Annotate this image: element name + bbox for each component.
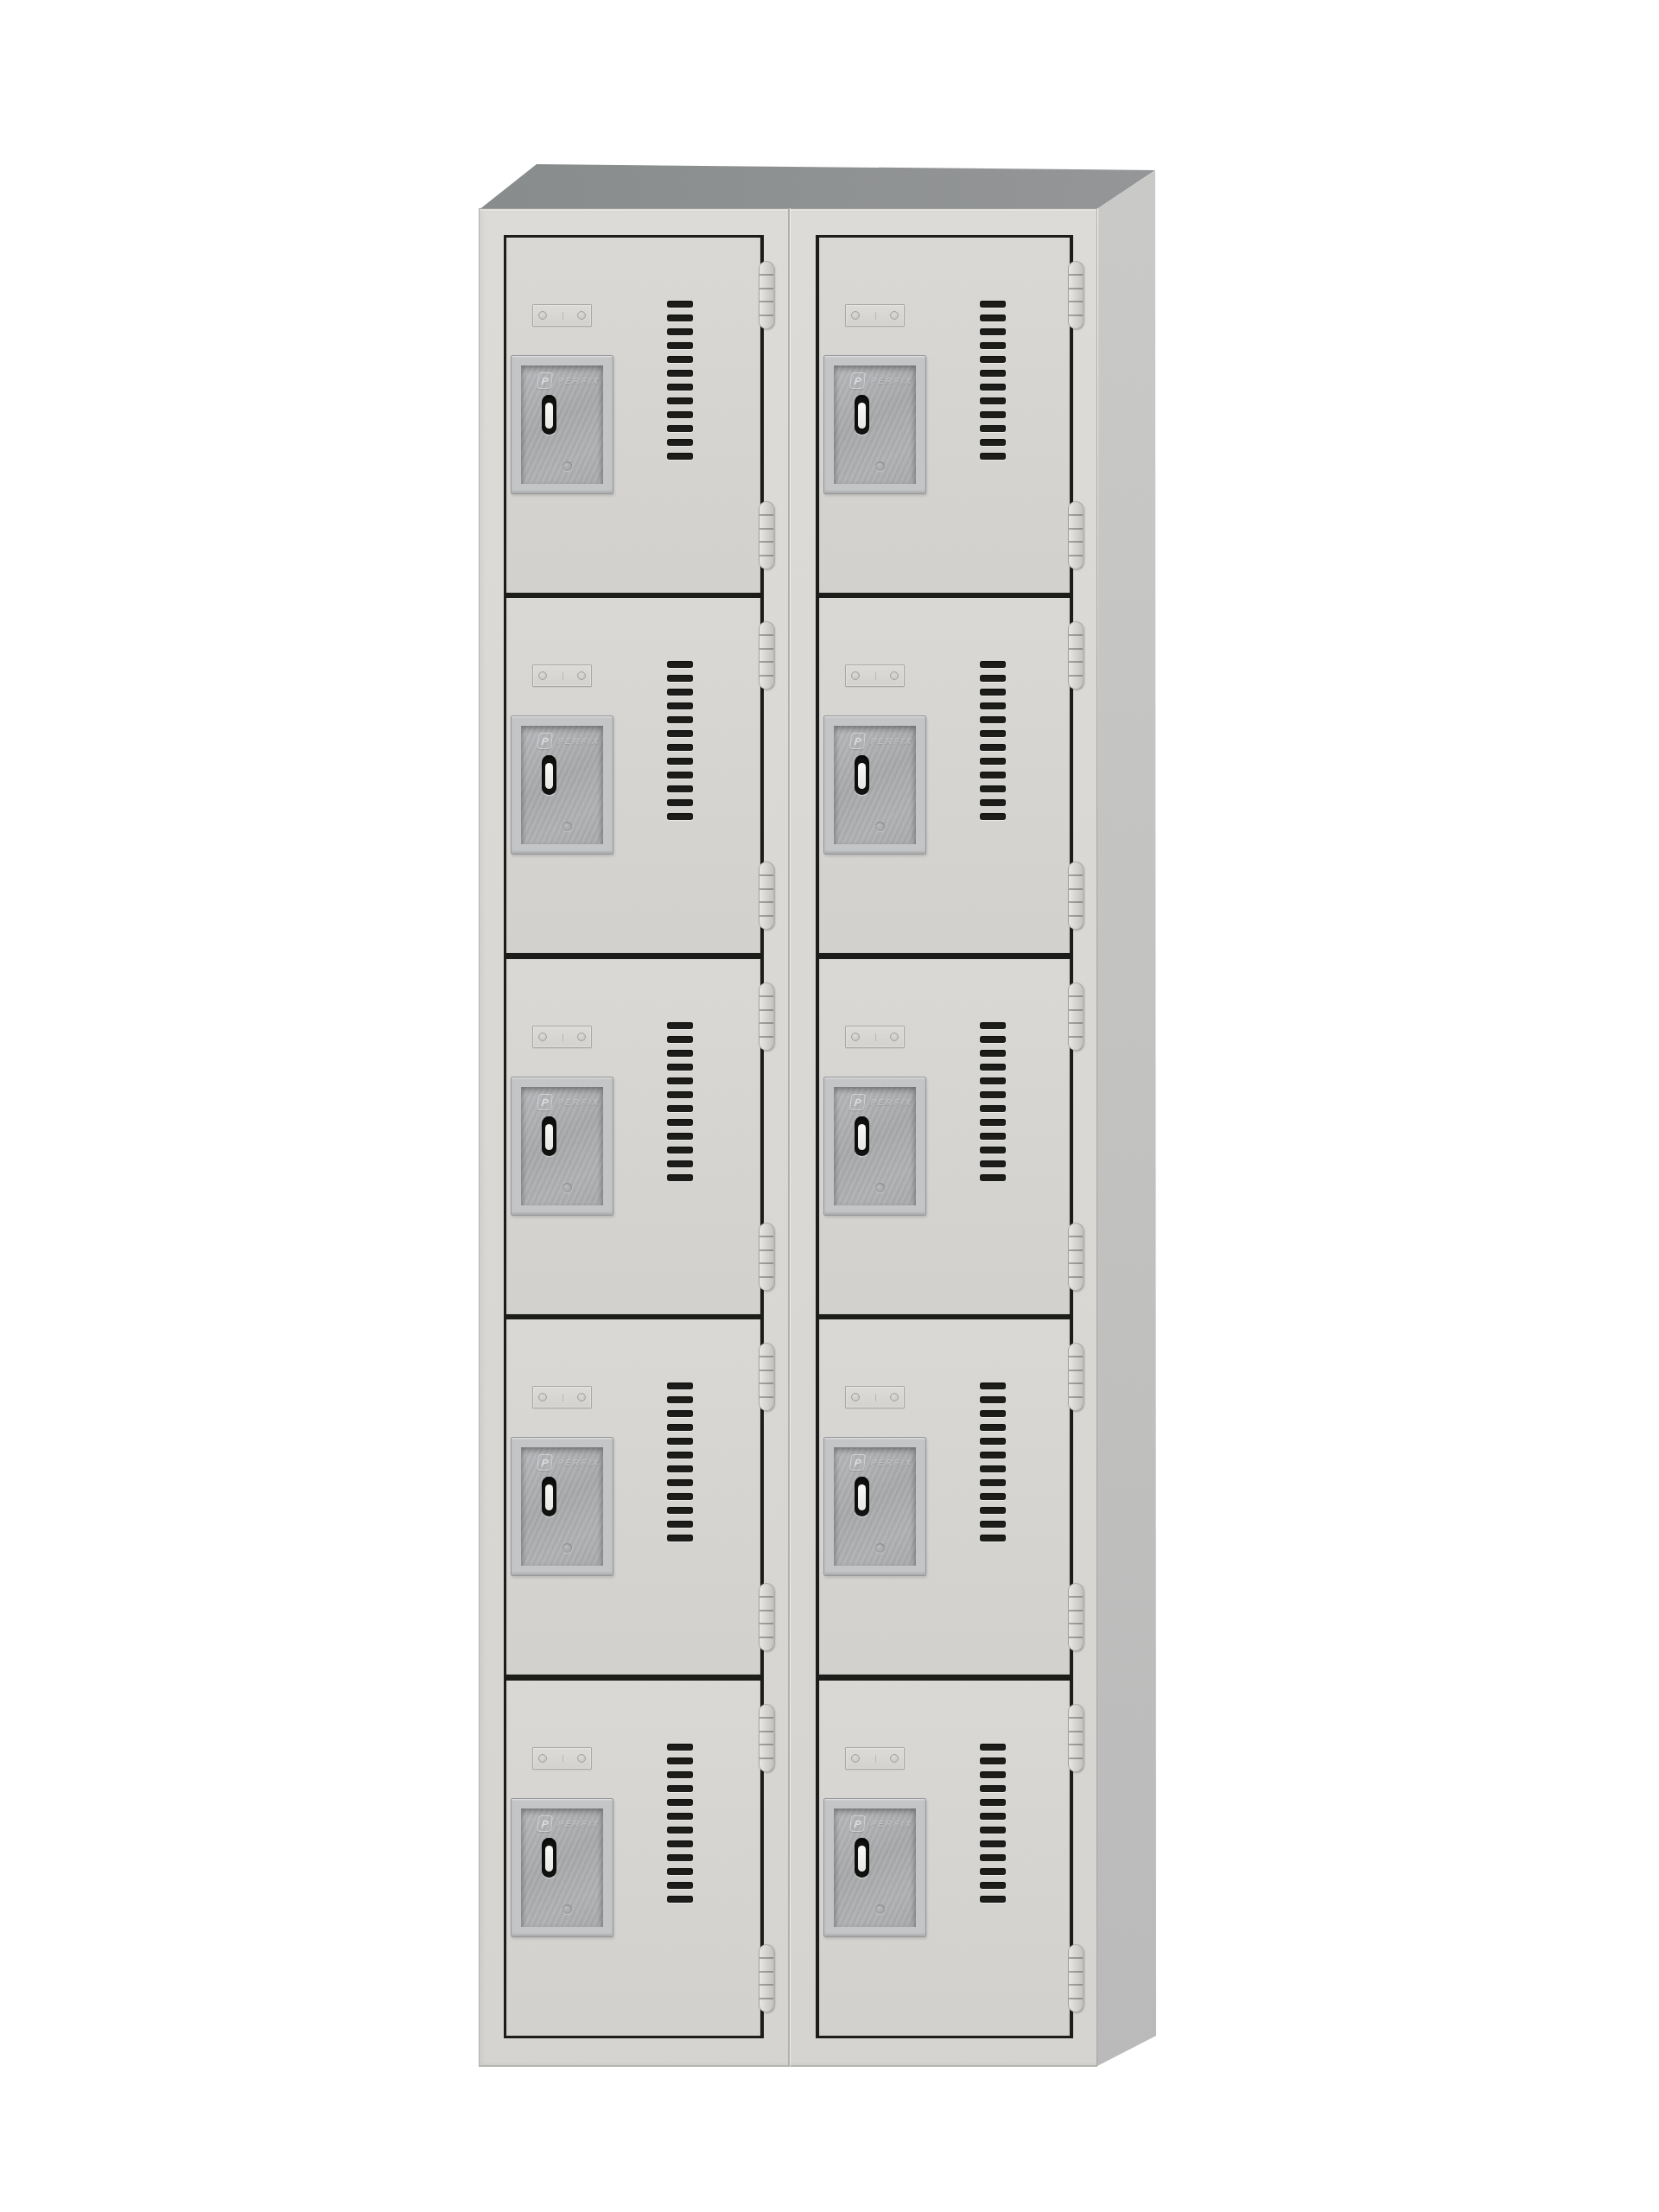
- vent-slot: [667, 1410, 693, 1417]
- vent-grid: [667, 301, 693, 467]
- name-plate: [532, 1026, 592, 1048]
- vent-slot: [667, 384, 693, 391]
- vent-slot: [667, 772, 693, 779]
- vent-slot: [980, 1785, 1006, 1792]
- vent-slot: [980, 356, 1006, 363]
- vent-slot: [980, 1105, 1006, 1112]
- vent-slot: [667, 1050, 693, 1057]
- locker-door: PPERFIX: [819, 959, 1070, 1314]
- vent-slot: [667, 716, 693, 723]
- handle-slot: [855, 1838, 869, 1878]
- handle-slot: [542, 1477, 556, 1516]
- hinge-top-icon: [759, 621, 774, 690]
- handle-insert: [545, 1124, 553, 1150]
- hinge-bottom-icon: [1068, 1944, 1084, 2012]
- name-plate-divider: [563, 312, 563, 320]
- vent-slot: [980, 370, 1006, 377]
- hinge-top-icon: [1068, 982, 1084, 1051]
- vent-slot: [667, 1785, 693, 1792]
- brand-monogram: P: [854, 736, 861, 747]
- vent-slot: [667, 301, 693, 308]
- vent-slot: [980, 1896, 1006, 1903]
- rivet-icon: [563, 822, 572, 831]
- brand-logo-icon: P: [537, 1454, 553, 1471]
- vent-slot: [980, 1521, 1006, 1528]
- vent-slot: [667, 744, 693, 751]
- vent-slot: [980, 1022, 1006, 1029]
- vent-slot: [667, 439, 693, 446]
- vent-slot: [980, 425, 1006, 432]
- rivet-icon: [875, 461, 885, 471]
- brand-logo-row: PPERFIX: [537, 1454, 601, 1471]
- name-plate-divider: [875, 1394, 876, 1402]
- vent-slot: [980, 1160, 1006, 1167]
- vent-slot: [980, 342, 1006, 349]
- rivet-icon: [563, 1543, 572, 1553]
- brand-logo-icon: P: [537, 733, 553, 749]
- cabinet-top-face: [479, 164, 1155, 210]
- name-plate-screw-icon: [890, 1033, 899, 1041]
- vent-slot: [667, 785, 693, 792]
- handle-slot: [855, 395, 869, 435]
- latch-plate: PPERFIX: [823, 355, 926, 494]
- locker-product-image: PPERFIXPPERFIXPPERFIXPPERFIXPPERFIX PPER…: [0, 0, 1659, 2212]
- vent-slot: [667, 1174, 693, 1181]
- brand-monogram: P: [854, 376, 861, 386]
- vent-slot: [980, 661, 1006, 668]
- brand-monogram: P: [541, 1819, 549, 1829]
- vent-slot: [667, 425, 693, 432]
- name-plate: [845, 304, 905, 327]
- vent-slot: [667, 702, 693, 709]
- vent-slot: [667, 411, 693, 418]
- vent-slot: [980, 689, 1006, 696]
- vent-slot: [667, 1827, 693, 1834]
- name-plate-screw-icon: [851, 1393, 860, 1402]
- handle-slot: [542, 1116, 556, 1156]
- hinge-bottom-icon: [759, 1583, 774, 1651]
- vent-slot: [667, 758, 693, 765]
- vent-slot: [980, 1119, 1006, 1126]
- name-plate-screw-icon: [538, 1754, 547, 1763]
- vent-slot: [667, 1133, 693, 1140]
- vent-slot: [667, 1896, 693, 1903]
- latch-plate: PPERFIX: [511, 355, 613, 494]
- vent-slot: [667, 1424, 693, 1431]
- name-plate-screw-icon: [538, 311, 547, 320]
- brand-logo-icon: P: [849, 372, 866, 389]
- vent-slot: [980, 328, 1006, 335]
- vent-slot: [980, 772, 1006, 779]
- locker-door: PPERFIX: [506, 238, 760, 593]
- hinge-top-icon: [759, 261, 774, 329]
- vent-slot: [980, 397, 1006, 404]
- brand-text: PERFIX: [869, 1819, 912, 1828]
- cabinet-right-side-face: [1096, 170, 1156, 2067]
- vent-slot: [667, 675, 693, 682]
- name-plate: [532, 304, 592, 327]
- name-plate-screw-icon: [890, 311, 899, 320]
- brand-logo-row: PPERFIX: [537, 733, 601, 749]
- hinge-bottom-icon: [759, 1944, 774, 2012]
- brand-logo-icon: P: [537, 1815, 553, 1832]
- vent-grid: [980, 661, 1006, 827]
- vent-slot: [980, 675, 1006, 682]
- name-plate-screw-icon: [538, 1393, 547, 1402]
- brand-logo-row: PPERFIX: [849, 1094, 913, 1110]
- brand-logo-row: PPERFIX: [849, 733, 913, 749]
- vent-slot: [980, 453, 1006, 460]
- name-plate-screw-icon: [851, 671, 860, 680]
- vent-slot: [980, 1133, 1006, 1140]
- brand-monogram: P: [541, 1458, 549, 1468]
- vent-slot: [980, 439, 1006, 446]
- vent-slot: [980, 1744, 1006, 1751]
- vent-slot: [980, 1396, 1006, 1403]
- vent-slot: [980, 1827, 1006, 1834]
- vent-slot: [667, 356, 693, 363]
- vent-grid: [980, 1744, 1006, 1910]
- vent-slot: [667, 370, 693, 377]
- rivet-icon: [563, 1183, 572, 1192]
- locker-door: PPERFIX: [506, 1319, 760, 1675]
- vent-slot: [980, 1465, 1006, 1472]
- rivet-icon: [875, 822, 885, 831]
- brand-logo-icon: P: [849, 733, 866, 749]
- handle-insert: [858, 1846, 866, 1872]
- vent-slot: [980, 1064, 1006, 1071]
- hinge-top-icon: [1068, 1343, 1084, 1411]
- vent-slot: [980, 1493, 1006, 1500]
- vent-slot: [980, 1868, 1006, 1875]
- brand-text: PERFIX: [869, 736, 912, 746]
- latch-plate: PPERFIX: [823, 1437, 926, 1576]
- name-plate-screw-icon: [851, 311, 860, 320]
- brand-logo-row: PPERFIX: [849, 1454, 913, 1471]
- vent-slot: [667, 1022, 693, 1029]
- vent-slot: [667, 730, 693, 737]
- latch-plate: PPERFIX: [823, 1077, 926, 1216]
- brand-monogram: P: [541, 1097, 549, 1108]
- vent-slot: [667, 1507, 693, 1514]
- name-plate: [532, 1747, 592, 1770]
- rivet-icon: [563, 1904, 572, 1914]
- vent-slot: [980, 411, 1006, 418]
- brand-monogram: P: [854, 1097, 861, 1108]
- hinge-top-icon: [759, 982, 774, 1051]
- vent-slot: [980, 1479, 1006, 1486]
- name-plate: [845, 1747, 905, 1770]
- locker-door: PPERFIX: [506, 1681, 760, 2036]
- name-plate: [845, 664, 905, 687]
- name-plate-divider: [563, 1394, 563, 1402]
- rivet-icon: [875, 1904, 885, 1914]
- hinge-top-icon: [1068, 621, 1084, 690]
- vent-slot: [980, 301, 1006, 308]
- hinge-bottom-icon: [1068, 1583, 1084, 1651]
- name-plate: [532, 664, 592, 687]
- brand-logo-icon: P: [849, 1454, 866, 1471]
- name-plate: [845, 1026, 905, 1048]
- vent-slot: [667, 1840, 693, 1847]
- brand-logo-icon: P: [849, 1094, 866, 1110]
- handle-slot: [855, 1116, 869, 1156]
- vent-slot: [667, 1744, 693, 1751]
- name-plate-screw-icon: [577, 1754, 586, 1763]
- handle-slot: [542, 395, 556, 435]
- brand-logo-icon: P: [537, 1094, 553, 1110]
- vent-slot: [667, 799, 693, 806]
- vent-slot: [667, 453, 693, 460]
- handle-slot: [855, 1477, 869, 1516]
- brand-monogram: P: [854, 1819, 861, 1829]
- vent-slot: [667, 1868, 693, 1875]
- vent-slot: [980, 1050, 1006, 1057]
- locker-door: PPERFIX: [819, 1319, 1070, 1675]
- vent-slot: [667, 1119, 693, 1126]
- hinge-top-icon: [1068, 1704, 1084, 1772]
- name-plate-screw-icon: [577, 1033, 586, 1041]
- name-plate-divider: [875, 1755, 876, 1763]
- hinge-top-icon: [759, 1343, 774, 1411]
- hinge-bottom-icon: [759, 501, 774, 569]
- brand-monogram: P: [541, 736, 549, 747]
- vent-grid: [667, 1382, 693, 1548]
- vent-slot: [667, 1799, 693, 1806]
- rivet-icon: [563, 461, 572, 471]
- vent-slot: [980, 1382, 1006, 1389]
- vent-slot: [980, 1077, 1006, 1084]
- vent-slot: [980, 813, 1006, 820]
- name-plate-screw-icon: [851, 1033, 860, 1041]
- name-plate-screw-icon: [577, 1393, 586, 1402]
- brand-text: PERFIX: [556, 1097, 600, 1107]
- brand-logo-icon: P: [849, 1815, 866, 1832]
- handle-insert: [545, 403, 553, 429]
- brand-monogram: P: [854, 1458, 861, 1468]
- vent-grid: [667, 661, 693, 827]
- vent-slot: [980, 1147, 1006, 1154]
- vent-slot: [667, 1535, 693, 1541]
- brand-text: PERFIX: [556, 1458, 600, 1467]
- locker-door: PPERFIX: [819, 238, 1070, 593]
- brand-text: PERFIX: [869, 1458, 912, 1467]
- hinge-top-icon: [759, 1704, 774, 1772]
- brand-logo-icon: P: [537, 372, 553, 389]
- vent-slot: [980, 1840, 1006, 1847]
- vent-slot: [667, 1382, 693, 1389]
- name-plate-divider: [875, 312, 876, 320]
- brand-logo-row: PPERFIX: [537, 1815, 601, 1832]
- name-plate-divider: [563, 1755, 563, 1763]
- vent-slot: [667, 1758, 693, 1764]
- vent-slot: [667, 1064, 693, 1071]
- vent-slot: [980, 1758, 1006, 1764]
- vent-slot: [667, 661, 693, 668]
- vent-slot: [667, 1147, 693, 1154]
- vent-grid: [667, 1022, 693, 1188]
- brand-text: PERFIX: [556, 376, 600, 385]
- handle-insert: [858, 763, 866, 789]
- latch-plate: PPERFIX: [511, 715, 613, 855]
- vent-slot: [667, 397, 693, 404]
- name-plate-divider: [875, 672, 876, 680]
- vent-slot: [667, 1882, 693, 1889]
- latch-plate: PPERFIX: [823, 715, 926, 855]
- vent-slot: [980, 1036, 1006, 1043]
- latch-plate: PPERFIX: [511, 1437, 613, 1576]
- rivet-icon: [875, 1543, 885, 1553]
- name-plate-screw-icon: [890, 1393, 899, 1402]
- name-plate-screw-icon: [577, 671, 586, 680]
- locker-door: PPERFIX: [819, 598, 1070, 953]
- name-plate-screw-icon: [890, 671, 899, 680]
- door-column-right: PPERFIXPPERFIXPPERFIXPPERFIXPPERFIX: [816, 235, 1073, 2038]
- hinge-bottom-icon: [1068, 1223, 1084, 1291]
- brand-text: PERFIX: [869, 1097, 912, 1107]
- brand-text: PERFIX: [556, 1819, 600, 1828]
- name-plate-screw-icon: [890, 1754, 899, 1763]
- vent-slot: [667, 1521, 693, 1528]
- name-plate-screw-icon: [577, 311, 586, 320]
- brand-logo-row: PPERFIX: [849, 372, 913, 389]
- vent-slot: [980, 384, 1006, 391]
- handle-slot: [855, 755, 869, 795]
- name-plate: [845, 1386, 905, 1408]
- vent-grid: [667, 1744, 693, 1910]
- locker-door: PPERFIX: [506, 959, 760, 1314]
- handle-slot: [542, 1838, 556, 1878]
- handle-slot: [542, 755, 556, 795]
- vent-slot: [667, 342, 693, 349]
- vent-grid: [980, 1022, 1006, 1188]
- brand-logo-row: PPERFIX: [537, 372, 601, 389]
- vent-slot: [980, 1410, 1006, 1417]
- vent-slot: [667, 328, 693, 335]
- vent-slot: [980, 1174, 1006, 1181]
- vent-slot: [667, 1396, 693, 1403]
- brand-text: PERFIX: [556, 736, 600, 746]
- vent-slot: [667, 1813, 693, 1820]
- name-plate: [532, 1386, 592, 1408]
- vent-slot: [980, 1507, 1006, 1514]
- vent-slot: [980, 716, 1006, 723]
- hinge-bottom-icon: [759, 861, 774, 930]
- brand-text: PERFIX: [869, 376, 912, 385]
- hinge-bottom-icon: [1068, 861, 1084, 930]
- handle-insert: [858, 403, 866, 429]
- door-column-left: PPERFIXPPERFIXPPERFIXPPERFIXPPERFIX: [504, 235, 764, 2038]
- vent-slot: [980, 1091, 1006, 1098]
- rivet-icon: [875, 1183, 885, 1192]
- vent-slot: [667, 1854, 693, 1861]
- vent-slot: [980, 1438, 1006, 1445]
- vent-slot: [980, 1799, 1006, 1806]
- vent-slot: [980, 758, 1006, 765]
- name-plate-screw-icon: [538, 1033, 547, 1041]
- vent-slot: [667, 689, 693, 696]
- latch-plate: PPERFIX: [511, 1798, 613, 1937]
- vent-grid: [980, 301, 1006, 467]
- vent-slot: [667, 1091, 693, 1098]
- name-plate-screw-icon: [851, 1754, 860, 1763]
- vent-slot: [980, 1535, 1006, 1541]
- vent-slot: [667, 1771, 693, 1778]
- hinge-bottom-icon: [759, 1223, 774, 1291]
- latch-plate: PPERFIX: [823, 1798, 926, 1937]
- locker-door: PPERFIX: [506, 598, 760, 953]
- name-plate-screw-icon: [538, 671, 547, 680]
- name-plate-divider: [563, 672, 563, 680]
- hinge-top-icon: [1068, 261, 1084, 329]
- handle-insert: [858, 1484, 866, 1510]
- latch-plate: PPERFIX: [511, 1077, 613, 1216]
- vent-grid: [980, 1382, 1006, 1548]
- locker-door: PPERFIX: [819, 1681, 1070, 2036]
- vent-slot: [667, 315, 693, 321]
- handle-insert: [858, 1124, 866, 1150]
- hinge-bottom-icon: [1068, 501, 1084, 569]
- center-unit-seam: [788, 208, 790, 2067]
- vent-slot: [980, 799, 1006, 806]
- name-plate-divider: [563, 1033, 563, 1041]
- vent-slot: [980, 1882, 1006, 1889]
- vent-slot: [667, 1036, 693, 1043]
- vent-slot: [667, 813, 693, 820]
- name-plate-divider: [875, 1033, 876, 1041]
- brand-logo-row: PPERFIX: [537, 1094, 601, 1110]
- handle-insert: [545, 763, 553, 789]
- vent-slot: [980, 315, 1006, 321]
- vent-slot: [667, 1077, 693, 1084]
- vent-slot: [980, 1771, 1006, 1778]
- vent-slot: [667, 1452, 693, 1459]
- vent-slot: [980, 785, 1006, 792]
- brand-monogram: P: [541, 376, 549, 386]
- vent-slot: [667, 1493, 693, 1500]
- handle-insert: [545, 1484, 553, 1510]
- vent-slot: [980, 1854, 1006, 1861]
- vent-slot: [980, 1452, 1006, 1459]
- brand-logo-row: PPERFIX: [849, 1815, 913, 1832]
- vent-slot: [667, 1479, 693, 1486]
- vent-slot: [980, 1813, 1006, 1820]
- handle-insert: [545, 1846, 553, 1872]
- vent-slot: [980, 744, 1006, 751]
- vent-slot: [667, 1105, 693, 1112]
- vent-slot: [980, 702, 1006, 709]
- vent-slot: [980, 730, 1006, 737]
- vent-slot: [667, 1465, 693, 1472]
- vent-slot: [667, 1160, 693, 1167]
- vent-slot: [667, 1438, 693, 1445]
- vent-slot: [980, 1424, 1006, 1431]
